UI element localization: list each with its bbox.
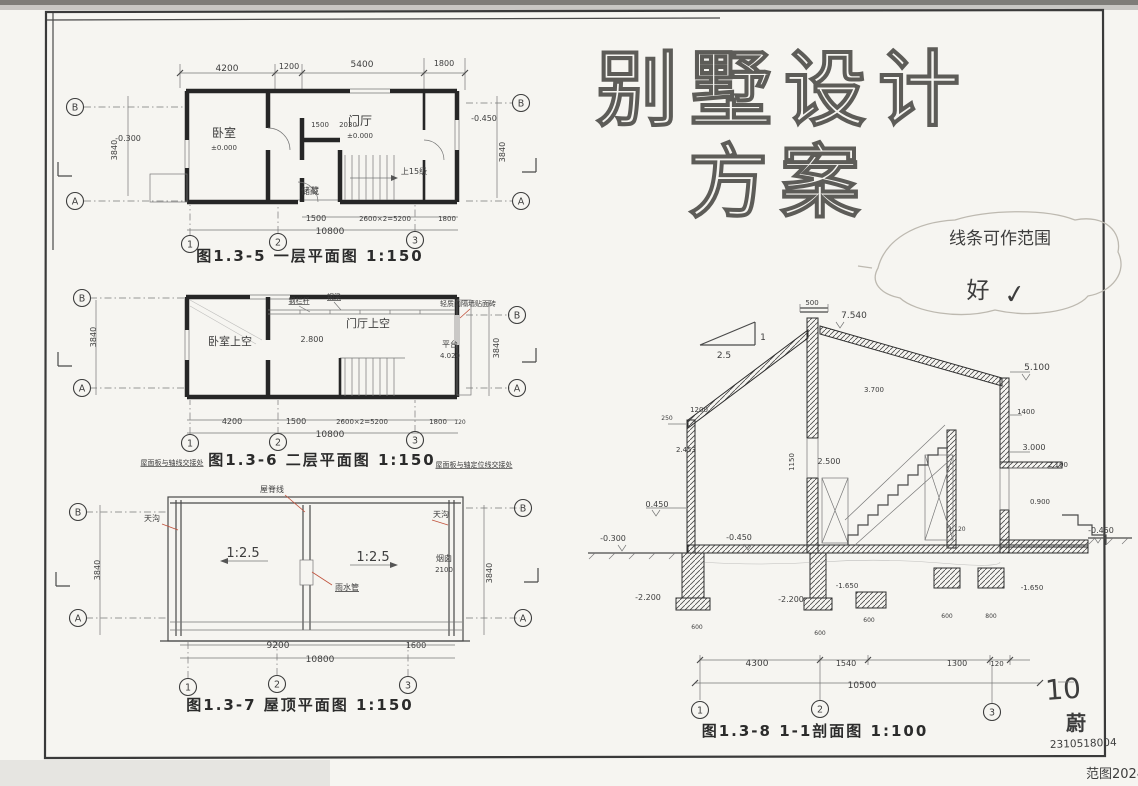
photo-edge-top [0,0,1138,5]
annotation-label: 0.450 [646,500,669,509]
annotation-label: ±0.000 [211,144,237,152]
footer-red-stamp: 范图2024 [1086,767,1138,782]
annotation-label: 2100 [435,566,453,574]
annotation-label: 500 [805,299,818,307]
grid-bubble-label: A [75,614,82,625]
annotation-label: 屋脊线 [260,484,284,494]
annotation-label: 10800 [316,227,345,237]
annotation-label: 轻质内隔墙贴面砖 [440,299,496,308]
annotation-label: 烟囱 [436,553,452,563]
title-line-1: 别墅设计 [596,43,972,138]
note-text: 线条可作范围 [949,229,1051,249]
annotation-label: 4300 [746,659,769,669]
annotation-label: 天沟 [433,509,449,519]
grid-bubble-label: 3 [412,436,418,447]
annotation-label: 3840 [485,563,494,583]
annotation-label: 1800 [438,215,456,223]
annotation-label: 1 [760,333,766,343]
annotation-label: 2030 [339,121,357,129]
annotation-label: 600 [941,613,953,620]
wall-right-upper [1000,378,1009,462]
annotation-label: 储藏 [301,185,319,197]
annotation-label: 1500 [286,417,306,426]
plan3-caption: 图1.3-7 屋顶平面图 1:150 [186,696,413,714]
annotation-label: -0.450 [726,533,752,542]
annotation-label: 2600×2=5200 [336,418,388,426]
grid-bubble-label: B [518,99,525,110]
annotation-label: 120 [454,419,466,426]
section-caption: 图1.3-8 1-1剖面图 1:100 [702,722,929,740]
annotation-label: 10500 [848,681,877,691]
check-mark-icon: ✓ [1002,279,1028,312]
annotation-label: 2.100 [1048,461,1068,469]
grid-bubble-label: A [79,384,86,395]
grid-bubble-label: 2 [817,705,823,716]
drawing-sheet-svg: 别墅设计 方案 线条可作范围 好 ✓ [0,0,1138,786]
author-signature: 蔚 [1066,711,1086,735]
annotation-label: 600 [863,617,875,624]
annotation-label: 3840 [498,142,507,162]
annotation-label: 雨水管 [335,582,359,592]
wall-ridge-lower [807,478,818,553]
annotation-label: 天沟 [144,513,160,523]
annotation-label: 9200 [267,641,290,651]
annotation-label: 5400 [351,60,374,70]
annotation-label: 1800 [429,418,447,426]
grid-bubble-label: B [520,504,527,515]
grid-bubble-label: 1 [187,439,193,450]
annotation-label: 0.900 [1030,498,1050,506]
annotation-label: -1.650 [1021,584,1044,592]
annotation-label: 1200 [279,62,299,71]
annotation-label: ±0.000 [347,132,373,140]
annotation-label: -0.450 [471,114,497,123]
annotation-label: 屋面板与轴线交接处 [141,458,204,467]
annotation-label: 1540 [836,659,856,668]
annotation-label: 3840 [89,327,98,347]
annotation-label: 1200 [690,406,708,414]
annotation-label: -1.650 [836,582,859,590]
grid-bubble-label: 1 [697,706,703,717]
annotation-label: 600 [691,624,703,631]
annotation-label: 钢栏杆 [289,296,310,305]
annotation-label: 600 [814,630,826,637]
annotation-label: 1500 [311,121,329,129]
annotation-label: -0.450 [1088,526,1114,535]
grid-bubble-label: B [514,311,521,322]
photo-edge-bottom [0,760,330,786]
annotation-label: 3.700 [864,386,884,394]
annotation-label: 1600 [406,641,426,650]
annotation-label: 4200 [216,64,239,74]
grid-bubble-label: 2 [275,438,281,449]
annotation-label: 4.020 [440,352,460,360]
annotation-label: -0.300 [600,534,626,543]
grid-bubble-label: 3 [405,681,411,692]
grid-bubble-label: B [72,103,79,114]
grid-bubble-label: 3 [412,236,418,247]
annotation-label: -0.300 [115,134,141,143]
annotation-label: 门厅上空 [346,316,390,330]
grid-bubble-label: A [514,384,521,395]
annotation-label: 3840 [492,338,501,358]
annotation-label: 7.540 [841,311,867,321]
annotation-label: 1500 [306,214,326,223]
annotation-label: 1150 [788,453,796,471]
annotation-label: 上15级 [401,166,427,176]
plan2-caption: 图1.3-6 二层平面图 1:150 [208,451,435,469]
annotation-label: 1:2.5 [356,550,389,565]
annotation-label: 4200 [222,417,242,426]
annotation-label: 卧室 [212,125,236,140]
grid-bubble-label: 3 [989,708,995,719]
annotation-label: 1.120 [948,526,965,533]
grid-bubble-label: 2 [274,680,280,691]
grid-bubble-label: A [520,614,527,625]
annotation-label: 2.453 [676,446,696,454]
note-grade: 好 [967,278,990,304]
grid-bubble-label: 1 [187,240,193,251]
annotation-label: -2.200 [635,593,661,602]
annotation-label: 2600×2=5200 [359,215,411,223]
annotation-label: 屋面板与轴定位线交接处 [436,460,513,469]
title-line-2: 方案 [688,136,872,229]
grid-bubble-label: B [79,294,86,305]
annotation-label: 1800 [434,59,454,68]
wall-ridge-upper [807,318,818,438]
page-number: 10 [1044,672,1082,707]
plan1-caption: 图1.3-5 一层平面图 1:150 [196,247,423,265]
grid-bubble-label: B [75,508,82,519]
annotation-label: 1400 [1017,408,1035,416]
annotation-label: 10800 [316,430,345,440]
grid-bubble-label: A [518,197,525,208]
porch-slab [1000,540,1088,547]
annotation-label: 120 [990,660,1003,668]
annotation-label: 250 [661,415,673,422]
annotation-label: 800 [985,613,997,620]
annotation-label: 2.500 [818,457,841,466]
annotation-label: 1:2.5 [226,546,259,561]
grid-bubble-label: A [72,197,79,208]
annotation-label: 3.000 [1023,443,1046,452]
annotation-label: 5.100 [1024,363,1050,373]
grid-bubble-label: 1 [185,683,191,694]
annotation-label: 3840 [93,560,102,580]
wall-left [687,420,695,553]
annotation-label: 1300 [947,659,967,668]
annotation-label: -2.200 [778,595,804,604]
annotation-label: 平台 [442,339,458,349]
annotation-label: 10800 [306,655,335,665]
annotation-label: 钢梁 [327,292,341,301]
student-id: 2310518004 [1050,737,1118,751]
scanned-sheet: 别墅设计 方案 线条可作范围 好 ✓ [0,0,1138,786]
annotation-label: 2.5 [717,351,731,361]
annotation-label: 2.800 [301,335,324,344]
annotation-label: 卧室上空 [208,334,252,348]
